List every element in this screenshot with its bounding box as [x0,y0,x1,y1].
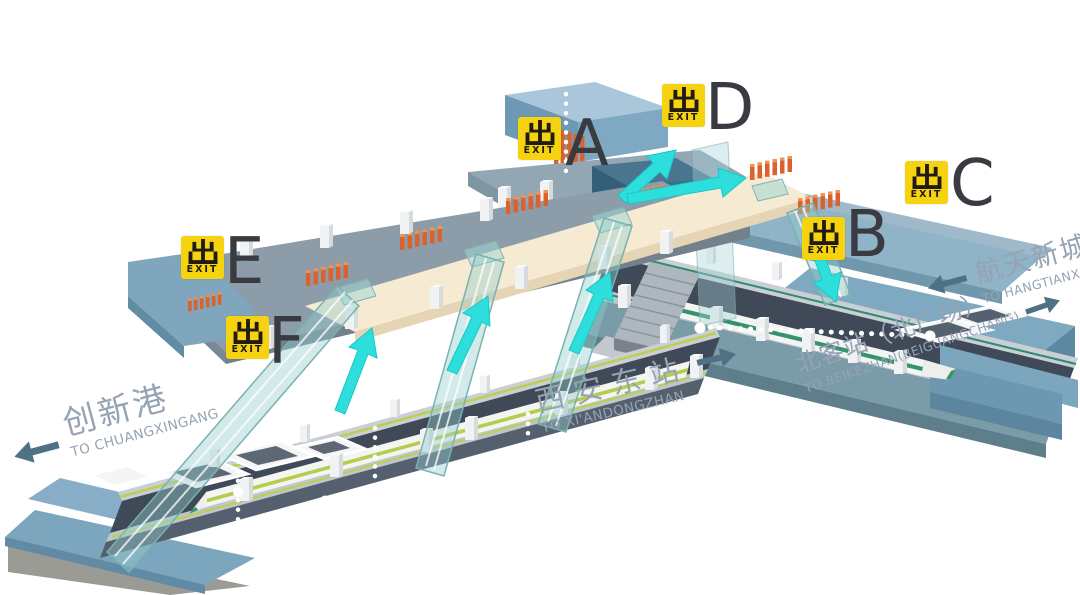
direction-arrow-right-icon [695,344,738,372]
exit-badge-a: EXIT [518,117,561,160]
station-structure [0,0,1080,595]
chu-exit-glyph-icon [669,87,699,112]
exit-word: EXIT [232,345,264,355]
flow-arrow-up-escalator-1 [335,328,377,414]
exit-letter-c: C [950,152,995,216]
chu-exit-glyph-icon [912,164,942,189]
exit-badge-c: EXIT [905,161,948,204]
exit-letter-e: E [224,230,264,294]
exit-letter-a: A [565,112,609,176]
exit-word: EXIT [668,113,700,123]
station-3d-map: EXIT A EXIT B EXIT C EXIT D EXIT E EXIT … [0,0,1080,595]
exit-word: EXIT [524,146,556,156]
exit-word: EXIT [808,246,840,256]
chu-exit-glyph-icon [233,319,263,344]
exit-badge-f: EXIT [226,316,269,359]
exit-badge-e: EXIT [181,236,224,279]
direction-arrow-left-icon [925,268,969,298]
exit-badge-b: EXIT [802,217,845,260]
exit-letter-f: F [268,310,305,374]
exit-word: EXIT [911,190,943,200]
direction-arrow-left-icon [11,434,61,467]
chu-exit-glyph-icon [809,220,839,245]
exit-badge-d: EXIT [662,84,705,127]
exit-letter-d: D [705,76,754,140]
chu-exit-glyph-icon [525,120,555,145]
chu-exit-glyph-icon [188,239,218,264]
exit-word: EXIT [187,265,219,275]
exit-letter-b: B [845,203,889,267]
